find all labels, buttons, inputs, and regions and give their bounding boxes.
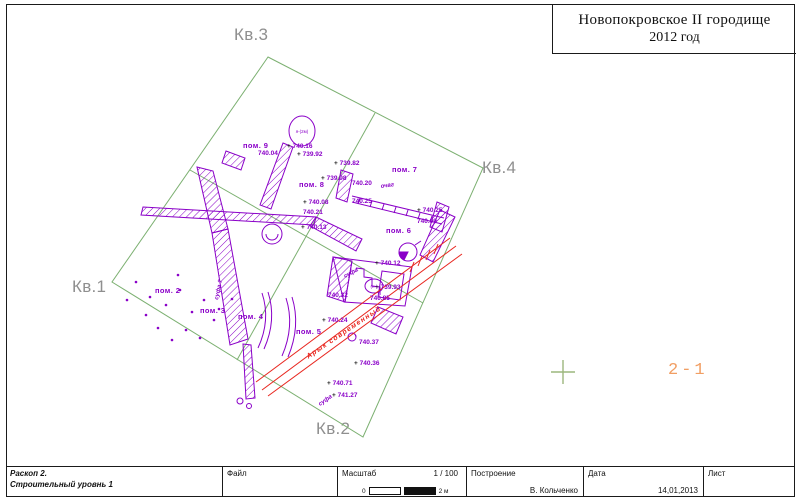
scale-bar: 0 2 м bbox=[362, 487, 449, 495]
title-block-scale: Масштаб 1 / 100 0 2 м bbox=[337, 467, 466, 497]
drawing-sheet: Новопокровское II городище 2012 год Кв.3… bbox=[0, 0, 800, 500]
elevation-mark: + 741.27 bbox=[332, 392, 358, 399]
elevation-mark: 740.32 bbox=[328, 292, 348, 299]
pit-label: я-(2м) bbox=[296, 129, 309, 134]
elevation-mark: 740.20 bbox=[352, 180, 372, 187]
title-block-sheet: Лист bbox=[703, 467, 795, 497]
room-label: пом. 7 bbox=[392, 165, 417, 174]
title-block: Раскоп 2. Строительный уровнь 1 Файл Мас… bbox=[6, 466, 795, 497]
elevation-mark: + 739.93 bbox=[375, 284, 401, 291]
elevation-mark: + 740.36 bbox=[354, 360, 380, 367]
walls-hatched bbox=[141, 143, 455, 399]
title-block-project: Раскоп 2. Строительный уровнь 1 bbox=[6, 467, 222, 497]
elevation-mark: + 740.24 bbox=[322, 317, 348, 324]
scale-bar-segment-white bbox=[369, 487, 401, 495]
scale-value: 1 / 100 bbox=[434, 469, 458, 478]
elevation-mark: 740.85 bbox=[370, 295, 390, 302]
elevation-mark: + 739.98 bbox=[321, 175, 347, 182]
elevation-mark: 740.37 bbox=[359, 339, 379, 346]
project-line2: Строительный уровнь 1 bbox=[10, 480, 218, 491]
project-line1: Раскоп 2. bbox=[10, 469, 218, 480]
elevation-mark: + 740.25 bbox=[417, 207, 443, 214]
scale-bar-segment-black bbox=[404, 487, 436, 495]
built-label: Построение bbox=[471, 469, 516, 478]
scale-bar-end: 2 м bbox=[439, 488, 449, 495]
elevation-mark: + 739.82 bbox=[334, 160, 360, 167]
elevation-mark: + 740.12 bbox=[375, 260, 401, 267]
scale-label: Масштаб bbox=[342, 469, 376, 478]
elevation-mark: + 740.16 bbox=[287, 143, 313, 150]
survey-cross-icon bbox=[551, 360, 575, 384]
elevation-mark: + 740.71 bbox=[327, 380, 353, 387]
file-label: Файл bbox=[227, 469, 247, 478]
title-block-date: Дата 14,01,2013 bbox=[583, 467, 703, 497]
scale-bar-zero: 0 bbox=[362, 488, 366, 495]
room-label: пом. 3 bbox=[200, 306, 225, 315]
pit-label: (н-) bbox=[371, 284, 378, 289]
room-label: пом. 5 bbox=[296, 327, 321, 336]
site-plan-drawing: пом. 9пом. 8пом. 7пом. 6пом. 5пом. 4пом.… bbox=[0, 0, 800, 500]
elevation-mark: + 739.92 bbox=[297, 151, 323, 158]
elevation-mark: 740.04 bbox=[258, 150, 278, 157]
elevation-mark: + 740.08 bbox=[303, 199, 329, 206]
title-block-built: Построение В. Кольченко bbox=[466, 467, 583, 497]
date-value: 14,01,2013 bbox=[658, 486, 698, 495]
room-label: пом. 9 bbox=[243, 141, 268, 150]
elevation-mark: 740.21 bbox=[303, 209, 323, 216]
canal-lines bbox=[256, 238, 462, 396]
elevation-mark: + 740.13 bbox=[301, 224, 327, 231]
sheet-label: Лист bbox=[708, 469, 725, 478]
room-label: пом. 4 bbox=[238, 312, 264, 321]
elevation-mark: 740.09 bbox=[417, 218, 437, 225]
date-label: Дата bbox=[588, 469, 606, 478]
built-value: В. Кольченко bbox=[530, 486, 578, 495]
title-block-file: Файл bbox=[222, 467, 337, 497]
elevation-mark: 740.25 bbox=[352, 198, 372, 205]
room-label: пом. 2 bbox=[155, 286, 180, 295]
room-label: пом. 6 bbox=[386, 226, 411, 235]
feature-note: очаг bbox=[380, 182, 395, 190]
